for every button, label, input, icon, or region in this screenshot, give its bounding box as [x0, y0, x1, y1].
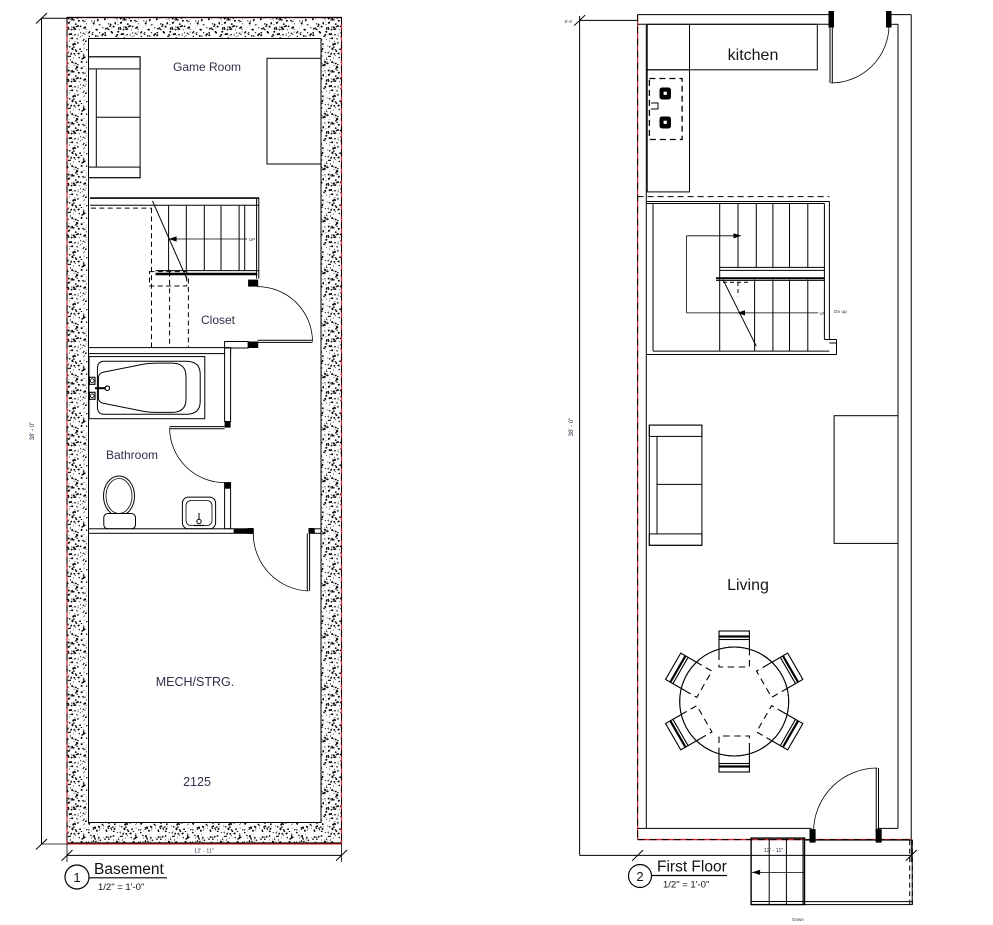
svg-text:MECH/STRG.: MECH/STRG. — [156, 675, 234, 689]
svg-text:Basement: Basement — [94, 861, 164, 878]
svg-text:1/2" = 1'-0": 1/2" = 1'-0" — [663, 880, 709, 891]
svg-text:2: 2 — [636, 869, 643, 884]
svg-text:6'-0: 6'-0 — [565, 19, 573, 24]
svg-text:Living: Living — [727, 577, 769, 594]
svg-text:kitchen: kitchen — [728, 47, 779, 64]
svg-text:First Floor: First Floor — [657, 859, 727, 876]
svg-text:UP: UP — [820, 311, 826, 316]
svg-text:38' - 0": 38' - 0" — [569, 418, 575, 437]
svg-text:1/2" = 1'-0": 1/2" = 1'-0" — [98, 882, 144, 893]
svg-text:1: 1 — [73, 870, 80, 885]
svg-text:Bathroom: Bathroom — [106, 448, 158, 462]
svg-text:12' - 11": 12' - 11" — [764, 848, 784, 854]
svg-text:38' - 0": 38' - 0" — [30, 422, 36, 441]
svg-text:Dn up: Dn up — [834, 309, 847, 315]
svg-text:UP: UP — [249, 237, 255, 242]
svg-text:Down: Down — [792, 917, 804, 922]
svg-text:Game Room: Game Room — [173, 60, 241, 74]
svg-text:2125: 2125 — [183, 775, 211, 789]
svg-text:12' - 11": 12' - 11" — [194, 849, 214, 855]
svg-text:Closet: Closet — [201, 313, 236, 327]
